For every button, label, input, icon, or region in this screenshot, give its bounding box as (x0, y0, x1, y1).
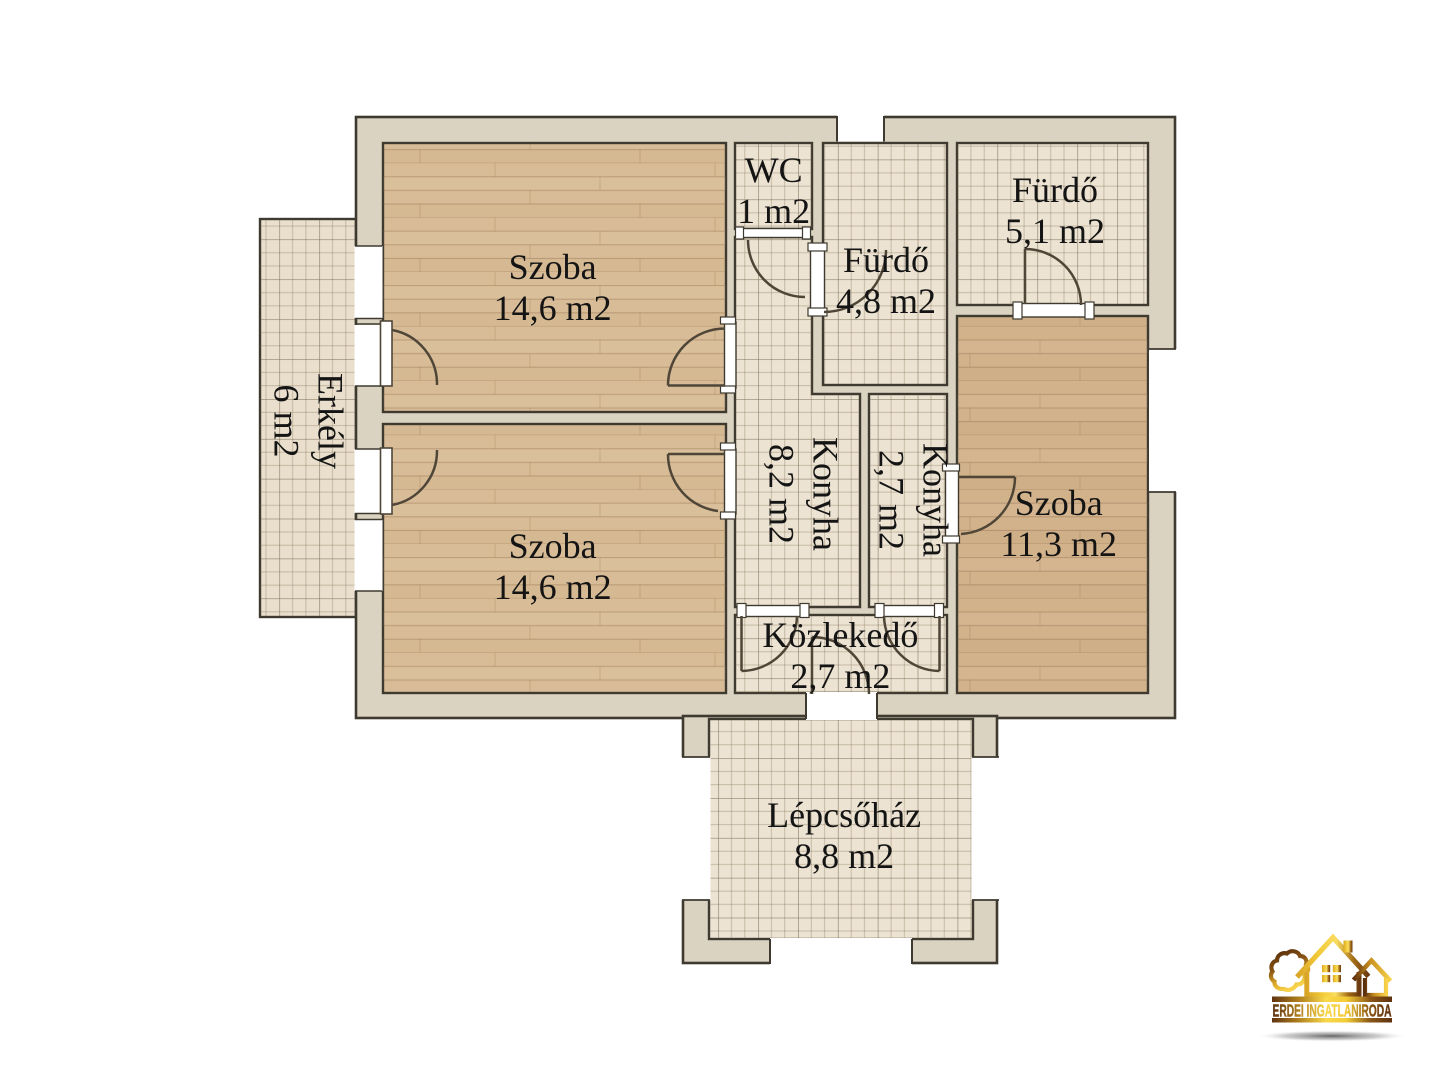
svg-text:ERDEI INGATLANIRODA: ERDEI INGATLANIRODA (1273, 1001, 1392, 1021)
